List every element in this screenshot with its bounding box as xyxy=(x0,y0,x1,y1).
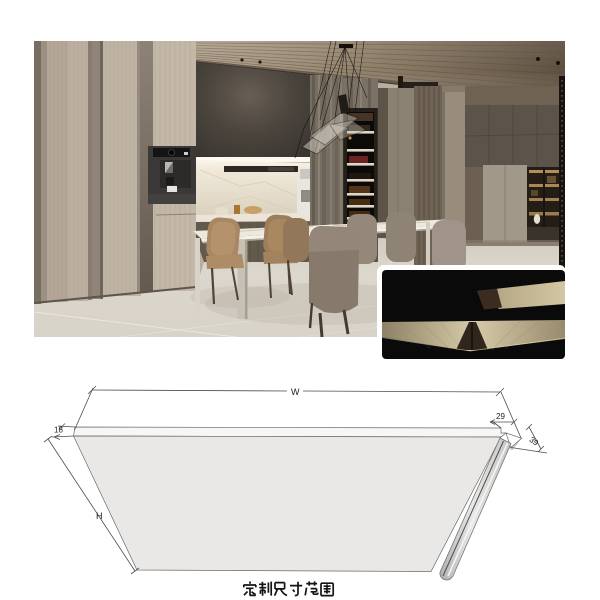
svg-text:H: H xyxy=(96,511,103,521)
svg-text:18: 18 xyxy=(54,426,63,435)
svg-text:W: W xyxy=(291,387,300,397)
svg-text:29: 29 xyxy=(496,412,505,421)
